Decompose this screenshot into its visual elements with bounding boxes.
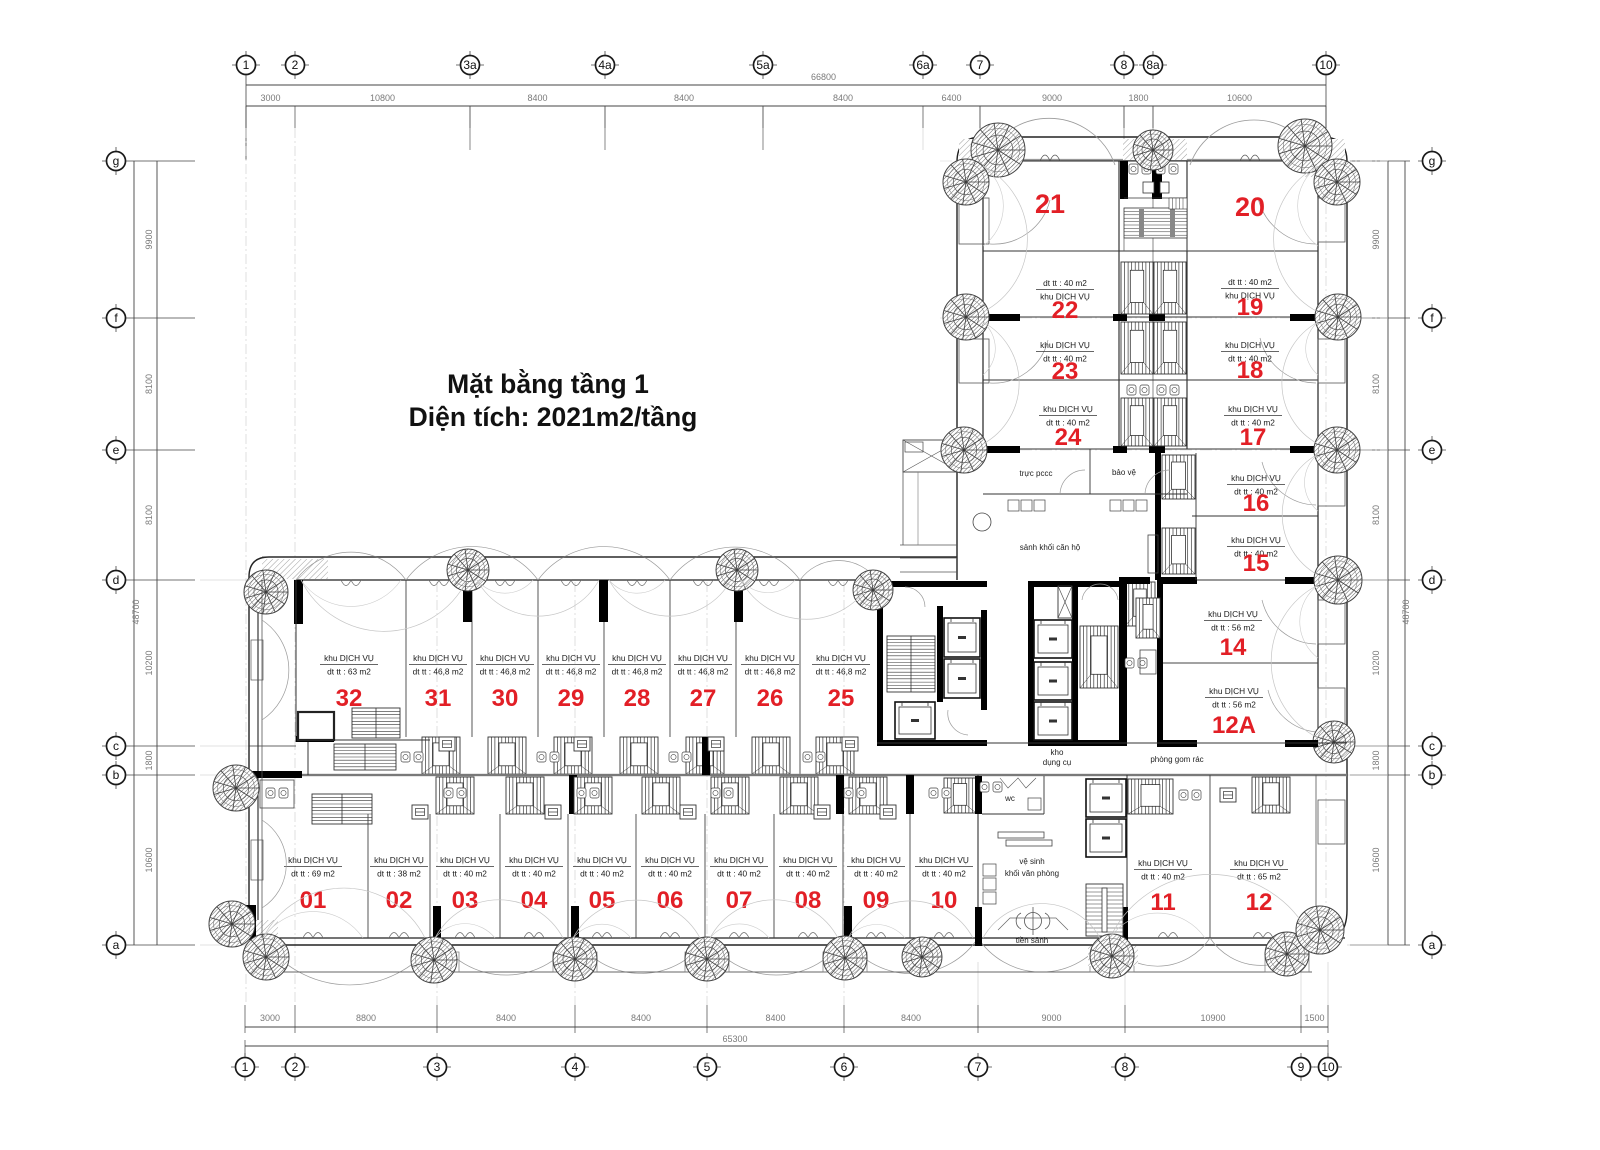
svg-text:10600: 10600	[144, 847, 154, 872]
svg-text:vệ sinh: vệ sinh	[1019, 857, 1044, 866]
svg-text:07: 07	[726, 887, 753, 914]
svg-text:c: c	[1429, 739, 1435, 753]
svg-text:dt tt : 46,8 m2: dt tt : 46,8 m2	[612, 667, 663, 677]
svg-text:9: 9	[1298, 1060, 1305, 1074]
svg-text:8400: 8400	[901, 1013, 921, 1023]
svg-text:dụng cụ: dụng cụ	[1043, 758, 1071, 767]
svg-text:khu DỊCH VỤ: khu DỊCH VỤ	[1225, 340, 1275, 350]
svg-text:8400: 8400	[527, 93, 547, 103]
svg-text:6400: 6400	[941, 93, 961, 103]
svg-text:3000: 3000	[260, 1013, 280, 1023]
svg-text:8a: 8a	[1146, 58, 1160, 72]
svg-text:khu DỊCH VỤ: khu DỊCH VỤ	[678, 653, 728, 663]
svg-text:khu DỊCH VỤ: khu DỊCH VỤ	[1228, 404, 1278, 414]
svg-text:dt tt : 40 m2: dt tt : 40 m2	[854, 869, 898, 879]
svg-text:d: d	[113, 573, 120, 587]
svg-text:1800: 1800	[144, 750, 154, 770]
svg-text:24: 24	[1055, 424, 1082, 451]
svg-text:1500: 1500	[1304, 1013, 1324, 1023]
svg-text:phòng gom rác: phòng gom rác	[1150, 755, 1203, 764]
svg-text:1800: 1800	[1371, 750, 1381, 770]
svg-text:17: 17	[1240, 424, 1267, 451]
svg-text:a: a	[113, 938, 120, 952]
svg-text:10: 10	[1319, 58, 1333, 72]
svg-text:1: 1	[243, 58, 250, 72]
svg-text:dt tt : 40 m2: dt tt : 40 m2	[786, 869, 830, 879]
svg-text:48700: 48700	[131, 599, 141, 624]
svg-text:11: 11	[1150, 889, 1175, 916]
svg-text:dt tt : 46,8 m2: dt tt : 46,8 m2	[678, 667, 729, 677]
svg-text:03: 03	[452, 887, 479, 914]
svg-text:8100: 8100	[1371, 374, 1381, 394]
svg-text:khu DỊCH VỤ: khu DỊCH VỤ	[577, 855, 627, 865]
svg-text:7: 7	[977, 58, 984, 72]
svg-text:khu DỊCH VỤ: khu DỊCH VỤ	[714, 855, 764, 865]
svg-text:a: a	[1429, 938, 1436, 952]
svg-text:dt tt : 40 m2: dt tt : 40 m2	[717, 869, 761, 879]
svg-text:dt tt : 46,8 m2: dt tt : 46,8 m2	[745, 667, 796, 677]
svg-text:66800: 66800	[811, 72, 836, 82]
svg-text:dt tt : 65 m2: dt tt : 65 m2	[1237, 872, 1281, 882]
svg-text:6: 6	[841, 1060, 848, 1074]
svg-text:b: b	[1429, 768, 1436, 782]
svg-text:khu DỊCH VỤ: khu DỊCH VỤ	[413, 653, 463, 663]
svg-text:10: 10	[931, 887, 958, 914]
svg-text:19: 19	[1237, 294, 1264, 321]
svg-text:14: 14	[1220, 634, 1247, 661]
svg-text:65300: 65300	[722, 1034, 747, 1044]
svg-text:khu DỊCH VỤ: khu DỊCH VỤ	[440, 855, 490, 865]
svg-text:18: 18	[1237, 357, 1264, 384]
svg-text:dt tt : 40 m2: dt tt : 40 m2	[1141, 872, 1185, 882]
svg-text:b: b	[113, 768, 120, 782]
svg-text:01: 01	[300, 887, 327, 914]
svg-text:20: 20	[1235, 192, 1265, 222]
svg-text:dt tt : 40 m2: dt tt : 40 m2	[1228, 277, 1272, 287]
svg-text:06: 06	[657, 887, 684, 914]
svg-text:dt tt : 56 m2: dt tt : 56 m2	[1212, 700, 1256, 710]
svg-text:10600: 10600	[1371, 847, 1381, 872]
svg-text:8400: 8400	[674, 93, 694, 103]
svg-text:9000: 9000	[1042, 93, 1062, 103]
svg-text:dt tt : 38 m2: dt tt : 38 m2	[377, 869, 421, 879]
svg-text:8100: 8100	[1371, 505, 1381, 525]
svg-text:sảnh khối căn hộ: sảnh khối căn hộ	[1020, 543, 1081, 552]
svg-text:8400: 8400	[631, 1013, 651, 1023]
svg-text:khu DỊCH VỤ: khu DỊCH VỤ	[919, 855, 969, 865]
svg-text:dt tt : 40 m2: dt tt : 40 m2	[1043, 278, 1087, 288]
svg-text:tiền sảnh: tiền sảnh	[1016, 936, 1048, 945]
svg-text:8100: 8100	[144, 505, 154, 525]
svg-text:e: e	[113, 443, 120, 457]
svg-text:8100: 8100	[144, 374, 154, 394]
svg-text:d: d	[1429, 573, 1436, 587]
svg-text:8: 8	[1122, 1060, 1129, 1074]
svg-text:khu DỊCH VỤ: khu DỊCH VỤ	[546, 653, 596, 663]
svg-text:25: 25	[828, 685, 855, 712]
svg-text:8400: 8400	[765, 1013, 785, 1023]
svg-text:9000: 9000	[1041, 1013, 1061, 1023]
svg-text:g: g	[113, 154, 120, 168]
svg-text:khu DỊCH VỤ: khu DỊCH VỤ	[1043, 404, 1093, 414]
svg-text:8400: 8400	[833, 93, 853, 103]
svg-text:khu DỊCH VỤ: khu DỊCH VỤ	[374, 855, 424, 865]
svg-text:khu DỊCH VỤ: khu DỊCH VỤ	[745, 653, 795, 663]
svg-text:khu DỊCH VỤ: khu DỊCH VỤ	[612, 653, 662, 663]
svg-text:khu DỊCH VỤ: khu DỊCH VỤ	[1209, 686, 1259, 696]
svg-text:28: 28	[624, 685, 651, 712]
svg-text:dt tt : 40 m2: dt tt : 40 m2	[443, 869, 487, 879]
svg-text:10200: 10200	[1371, 650, 1381, 675]
svg-text:05: 05	[589, 887, 616, 914]
svg-text:4: 4	[572, 1060, 579, 1074]
svg-text:1800: 1800	[1128, 93, 1148, 103]
svg-text:khu DỊCH VỤ: khu DỊCH VỤ	[1231, 535, 1281, 545]
svg-text:23: 23	[1052, 358, 1079, 385]
svg-text:1: 1	[242, 1060, 249, 1074]
svg-text:2: 2	[292, 1060, 299, 1074]
svg-text:31: 31	[425, 685, 452, 712]
svg-text:4a: 4a	[598, 58, 612, 72]
svg-text:9900: 9900	[144, 229, 154, 249]
svg-text:Mặt bằng tầng 1: Mặt bằng tầng 1	[447, 369, 649, 399]
svg-text:8800: 8800	[356, 1013, 376, 1023]
svg-text:22: 22	[1052, 297, 1079, 324]
svg-text:khu DỊCH VỤ: khu DỊCH VỤ	[816, 653, 866, 663]
svg-text:10600: 10600	[1227, 93, 1252, 103]
svg-text:dt tt : 46,8 m2: dt tt : 46,8 m2	[546, 667, 597, 677]
svg-text:trực pccc: trực pccc	[1020, 469, 1053, 478]
svg-text:16: 16	[1243, 490, 1270, 517]
svg-text:3a: 3a	[463, 58, 477, 72]
svg-text:48700: 48700	[1401, 599, 1411, 624]
svg-text:dt tt : 56 m2: dt tt : 56 m2	[1211, 623, 1255, 633]
svg-text:dt tt : 40 m2: dt tt : 40 m2	[512, 869, 556, 879]
svg-text:bảo vệ: bảo vệ	[1112, 468, 1137, 477]
svg-text:3000: 3000	[260, 93, 280, 103]
svg-text:khu DỊCH VỤ: khu DỊCH VỤ	[288, 855, 338, 865]
svg-text:32: 32	[336, 685, 363, 712]
svg-text:dt tt : 46,8 m2: dt tt : 46,8 m2	[480, 667, 531, 677]
svg-text:c: c	[113, 739, 119, 753]
svg-text:dt tt : 40 m2: dt tt : 40 m2	[648, 869, 692, 879]
svg-text:khu DỊCH VỤ: khu DỊCH VỤ	[324, 653, 374, 663]
svg-text:27: 27	[690, 685, 717, 712]
svg-text:dt tt : 46,8 m2: dt tt : 46,8 m2	[413, 667, 464, 677]
svg-text:dt tt : 40 m2: dt tt : 40 m2	[580, 869, 624, 879]
svg-text:khu DỊCH VỤ: khu DỊCH VỤ	[1231, 473, 1281, 483]
svg-text:8400: 8400	[496, 1013, 516, 1023]
svg-text:08: 08	[795, 887, 822, 914]
svg-text:dt tt : 40 m2: dt tt : 40 m2	[922, 869, 966, 879]
svg-text:khu DỊCH VỤ: khu DỊCH VỤ	[1208, 609, 1258, 619]
svg-text:e: e	[1429, 443, 1436, 457]
svg-text:9900: 9900	[1371, 229, 1381, 249]
svg-text:12A: 12A	[1212, 712, 1256, 739]
svg-text:6a: 6a	[916, 58, 930, 72]
svg-text:khu DỊCH VỤ: khu DỊCH VỤ	[480, 653, 530, 663]
svg-text:khu DỊCH VỤ: khu DỊCH VỤ	[1040, 340, 1090, 350]
svg-text:dt tt : 63 m2: dt tt : 63 m2	[327, 667, 371, 677]
svg-text:g: g	[1429, 154, 1436, 168]
svg-text:8: 8	[1121, 58, 1128, 72]
svg-text:10: 10	[1321, 1060, 1335, 1074]
svg-text:dt tt : 69 m2: dt tt : 69 m2	[291, 869, 335, 879]
svg-text:2: 2	[292, 58, 299, 72]
svg-text:10200: 10200	[144, 650, 154, 675]
svg-text:dt tt : 46,8 m2: dt tt : 46,8 m2	[816, 667, 867, 677]
svg-text:10800: 10800	[370, 93, 395, 103]
svg-text:5a: 5a	[756, 58, 770, 72]
svg-text:khu DỊCH VỤ: khu DỊCH VỤ	[1138, 858, 1188, 868]
svg-text:Diện tích: 2021m2/tầng: Diện tích: 2021m2/tầng	[409, 402, 698, 432]
svg-text:15: 15	[1243, 550, 1270, 577]
svg-text:kho: kho	[1051, 748, 1064, 757]
svg-text:30: 30	[492, 685, 519, 712]
svg-text:khu DỊCH VỤ: khu DỊCH VỤ	[509, 855, 559, 865]
svg-text:04: 04	[521, 887, 548, 914]
svg-text:khu DỊCH VỤ: khu DỊCH VỤ	[645, 855, 695, 865]
svg-text:21: 21	[1035, 189, 1065, 219]
svg-text:29: 29	[558, 685, 585, 712]
svg-text:wc: wc	[1004, 794, 1015, 803]
svg-text:3: 3	[434, 1060, 441, 1074]
svg-text:7: 7	[975, 1060, 982, 1074]
svg-text:khối văn phòng: khối văn phòng	[1005, 869, 1059, 878]
svg-text:khu DỊCH VỤ: khu DỊCH VỤ	[1234, 858, 1284, 868]
svg-text:12: 12	[1246, 889, 1273, 916]
svg-text:26: 26	[757, 685, 784, 712]
svg-text:khu DỊCH VỤ: khu DỊCH VỤ	[783, 855, 833, 865]
svg-text:10900: 10900	[1200, 1013, 1225, 1023]
svg-text:5: 5	[704, 1060, 711, 1074]
svg-text:khu DỊCH VỤ: khu DỊCH VỤ	[851, 855, 901, 865]
